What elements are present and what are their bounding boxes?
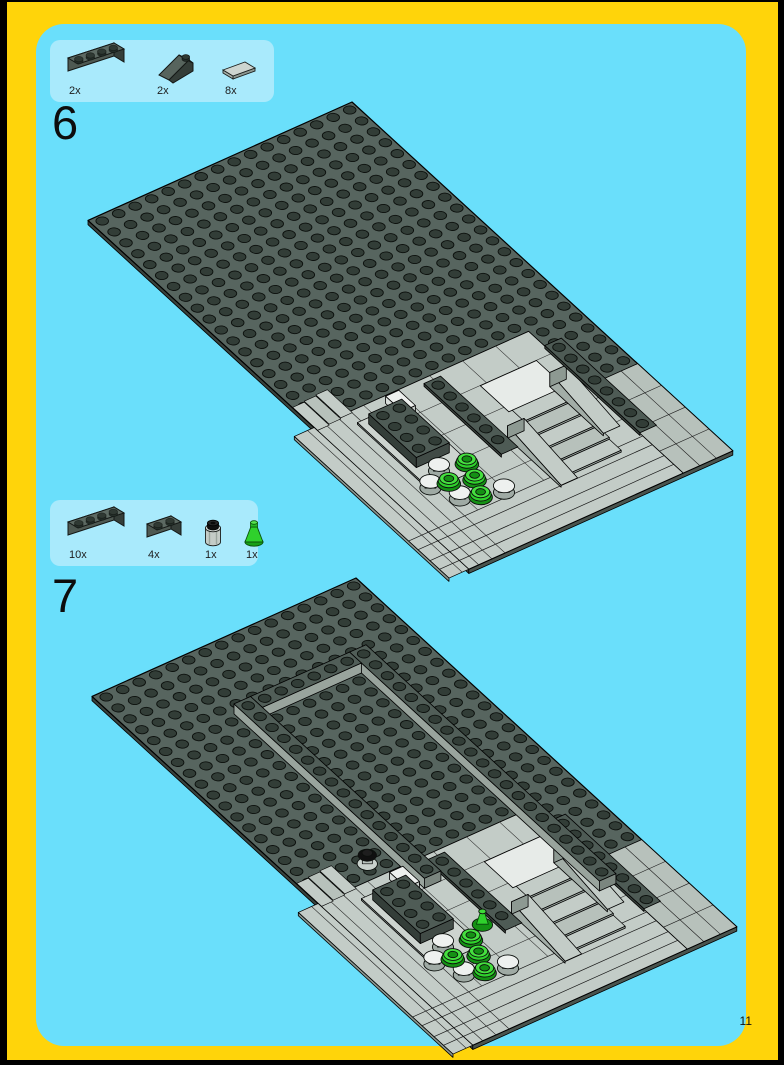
part-slot: 1x bbox=[241, 515, 267, 561]
round-brick-1x1-light-black-icon bbox=[200, 515, 226, 549]
part-count-label: 1x bbox=[200, 550, 217, 561]
brick-1x4-dark-icon bbox=[64, 503, 128, 549]
part-slot: 2x bbox=[152, 43, 196, 97]
part-count-label: 8x bbox=[220, 86, 237, 97]
step6-parts-callout: 2x 2x 8x bbox=[50, 40, 274, 102]
part-count-label: 2x bbox=[152, 86, 169, 97]
part-count-label: 4x bbox=[143, 550, 160, 561]
part-count-label: 10x bbox=[64, 550, 87, 561]
cone-1x1-green-icon bbox=[241, 515, 267, 549]
instruction-page: 2x 2x 8x 6 bbox=[0, 0, 784, 1065]
part-slot: 4x bbox=[143, 507, 185, 561]
brick-1x2-dark-icon bbox=[143, 507, 185, 549]
part-slot: 2x bbox=[64, 39, 128, 97]
part-count-label: 1x bbox=[241, 550, 258, 561]
step6-number: 6 bbox=[52, 99, 78, 146]
part-slot: 8x bbox=[220, 59, 260, 97]
step7-number: 7 bbox=[52, 572, 78, 619]
part-slot: 10x bbox=[64, 503, 128, 561]
step7-parts-callout: 10x 4x 1x bbox=[50, 500, 258, 566]
brick-1x4-dark-icon bbox=[64, 39, 128, 85]
part-slot: 1x bbox=[200, 515, 226, 561]
slope-1x2-dark-icon bbox=[152, 43, 196, 85]
page-number: 11 bbox=[722, 1014, 752, 1028]
tile-1x2-light-icon bbox=[220, 59, 260, 85]
